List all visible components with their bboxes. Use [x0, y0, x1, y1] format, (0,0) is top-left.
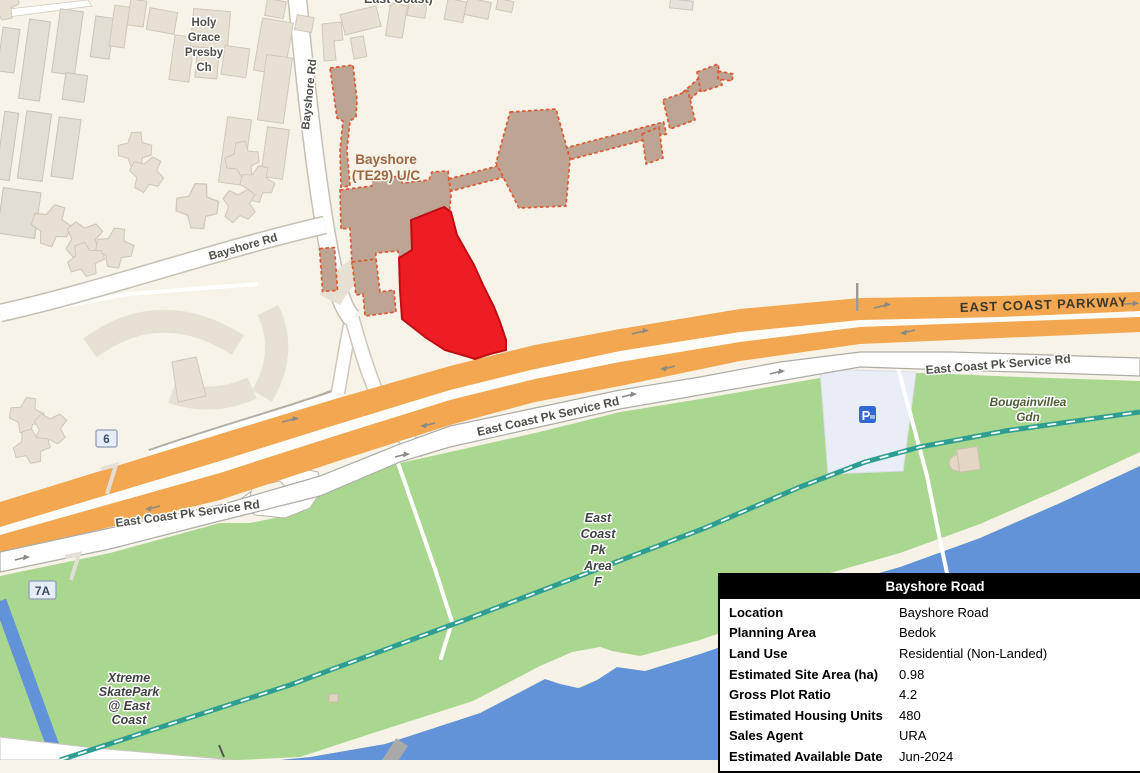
- svg-text:Pk: Pk: [590, 543, 606, 557]
- svg-text:Coast: Coast: [112, 713, 148, 727]
- svg-text:7A: 7A: [35, 584, 51, 598]
- svg-text:Ch: Ch: [196, 62, 211, 74]
- svg-text:East Coast): East Coast): [364, 0, 433, 6]
- svg-text:Area: Area: [583, 559, 612, 573]
- svg-text:Gdn: Gdn: [1016, 410, 1040, 424]
- svg-text:SkatePark: SkatePark: [99, 685, 161, 699]
- svg-text:Grace: Grace: [188, 32, 221, 44]
- svg-text:East: East: [585, 511, 612, 525]
- svg-text:Holy: Holy: [192, 17, 218, 29]
- svg-text:Bayshore: Bayshore: [355, 152, 417, 167]
- svg-text:Bougainvillea: Bougainvillea: [990, 395, 1067, 409]
- svg-text:(TE29) U/C: (TE29) U/C: [352, 168, 421, 183]
- svg-text:Presby: Presby: [185, 47, 224, 59]
- svg-text:P: P: [862, 408, 871, 423]
- svg-text:Coast: Coast: [581, 527, 617, 541]
- svg-text:@ East: @ East: [108, 699, 151, 713]
- svg-text:6: 6: [103, 434, 109, 446]
- svg-text:Xtreme: Xtreme: [107, 671, 150, 685]
- svg-text:F: F: [594, 575, 602, 589]
